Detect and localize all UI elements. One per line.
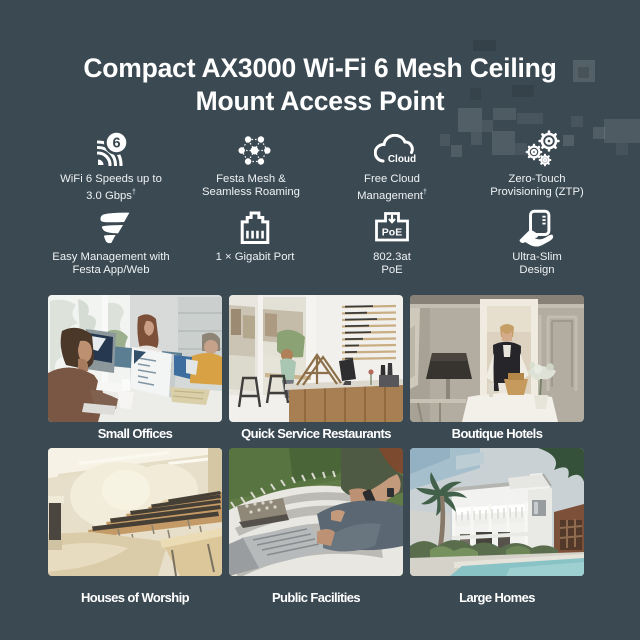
svg-text:Cloud: Cloud [388,154,416,165]
svg-text:6: 6 [112,136,120,152]
svg-text:PoE: PoE [382,227,402,239]
